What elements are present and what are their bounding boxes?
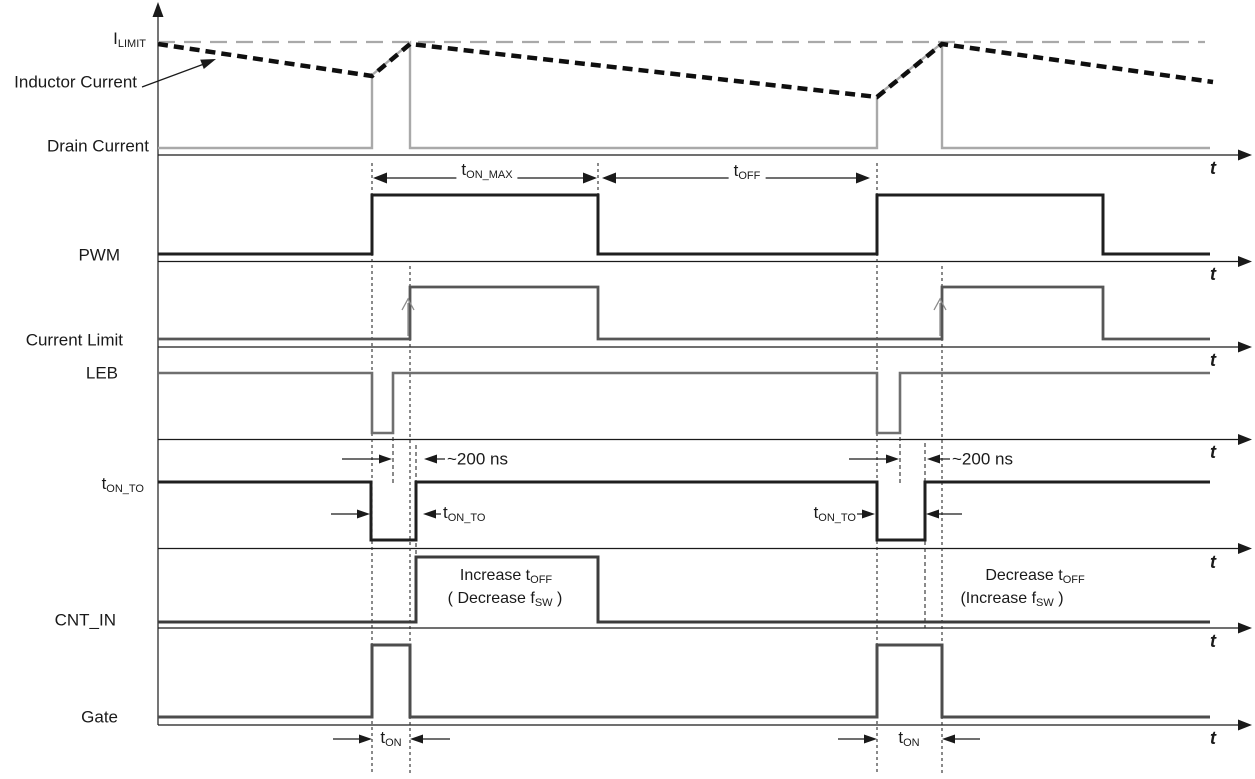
current-limit-trace: [158, 287, 1210, 339]
time-axis-arrowhead: [1238, 720, 1252, 731]
time-axis-label: t: [1210, 351, 1216, 369]
decrease-toff-note-line1: Decrease tOFF: [985, 568, 1084, 586]
ns200-arrowhead-left-1: [424, 455, 437, 464]
increase-toff-note-line1: Increase tOFF: [460, 568, 552, 586]
ton-arrowhead-right-2: [864, 735, 877, 744]
drain-current-label: Drain Current: [47, 138, 149, 155]
time-axis-label: t: [1210, 729, 1216, 747]
t-on-to-annotation-2: tON_TO: [814, 504, 856, 524]
ton-arrowhead-right-1: [359, 735, 372, 744]
tonto-arrowhead-left-2: [926, 510, 939, 519]
inductor-current-label: Inductor Current: [14, 74, 137, 91]
gate-trace: [158, 645, 1210, 717]
time-axis-arrowhead: [1238, 256, 1252, 267]
t-on-label-2: tON: [898, 729, 919, 749]
t-off-label: tOFF: [729, 162, 766, 182]
blanking-delay-label-1: ~200 ns: [447, 451, 508, 468]
leb-trace: [158, 373, 1210, 433]
time-axis-label: t: [1210, 265, 1216, 283]
ton-max-arrowhead-right: [583, 173, 597, 184]
time-axis-label: t: [1210, 553, 1216, 571]
inductor-current-trace: [158, 44, 1213, 97]
cnt-in-label: CNT_IN: [55, 612, 116, 629]
time-axis-arrowhead: [1238, 434, 1252, 445]
tonto-arrowhead-right-2: [862, 510, 875, 519]
t-on-to-annotation-1: tON_TO: [443, 504, 485, 524]
time-axis-arrowhead: [1238, 623, 1252, 634]
ns200-arrowhead-left-2: [927, 455, 940, 464]
gate-label: Gate: [81, 709, 118, 726]
time-axis-arrowhead: [1238, 342, 1252, 353]
ns200-arrowhead-right-1: [379, 455, 392, 464]
y-axis-arrowhead: [153, 2, 164, 17]
pwm-trace: [158, 195, 1210, 254]
time-axis-label: t: [1210, 159, 1216, 177]
time-axis-label: t: [1210, 443, 1216, 461]
time-axis-arrowhead: [1238, 150, 1252, 161]
toff-arrowhead-left: [602, 173, 616, 184]
inductor-current-pointer: [142, 59, 216, 87]
current-limit-label: Current Limit: [26, 332, 123, 349]
ton-arrowhead-left-2: [942, 735, 955, 744]
timing-diagram-canvas: [0, 0, 1255, 779]
ton-max-arrowhead-left: [373, 173, 387, 184]
time-axis-label: t: [1210, 632, 1216, 650]
axes-lines: [158, 16, 1239, 725]
tonto-arrowhead-left-1: [423, 510, 436, 519]
blanking-delay-label-2: ~200 ns: [952, 451, 1013, 468]
increase-toff-note-line2: ( Decrease fSW ): [448, 591, 563, 609]
ton-arrowhead-left-1: [410, 735, 423, 744]
t-on-to-row-label: tON_TO: [102, 475, 144, 495]
timing-diagram: ILIMIT Inductor Current Drain Current PW…: [0, 0, 1255, 779]
time-axis-arrowhead: [1238, 543, 1252, 554]
current-limit-rise-arrows: [402, 299, 946, 336]
i-limit-label: ILIMIT: [113, 30, 146, 50]
t-on-max-label: tON_MAX: [456, 161, 517, 181]
decrease-toff-note-line2: (Increase fSW ): [960, 591, 1063, 609]
t-on-to-trace: [158, 482, 1210, 540]
ns200-arrowhead-right-2: [886, 455, 899, 464]
toff-arrowhead-right: [856, 173, 870, 184]
tonto-arrowhead-right-1: [357, 510, 370, 519]
t-on-label-1: tON: [380, 729, 401, 749]
leb-label: LEB: [86, 365, 118, 382]
pwm-label: PWM: [78, 247, 120, 264]
